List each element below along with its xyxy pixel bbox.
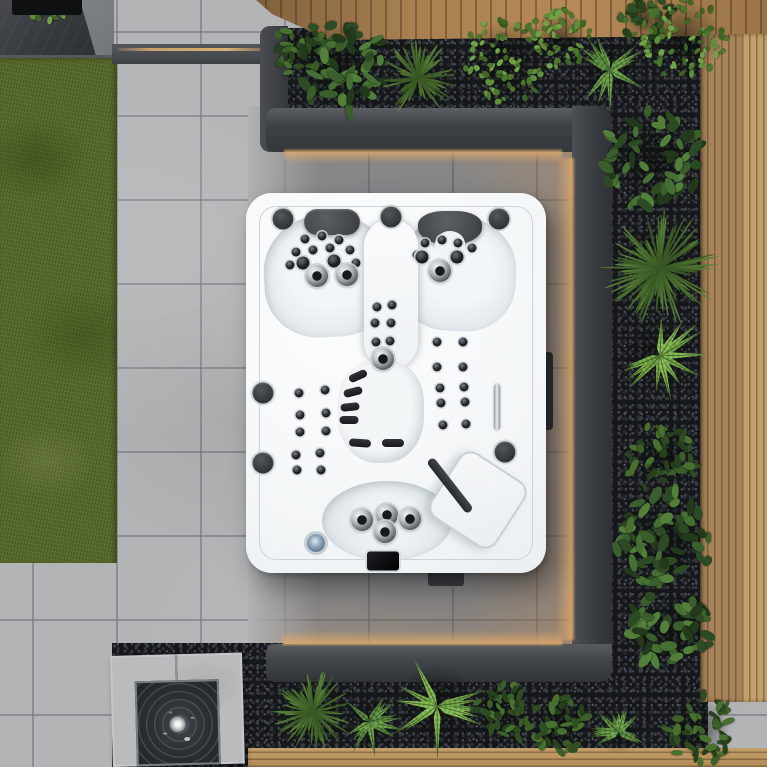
jet-pad	[340, 416, 359, 424]
jet-s	[322, 409, 331, 418]
jet-m	[328, 255, 341, 268]
jet-pad	[348, 368, 369, 383]
jet-s	[433, 363, 442, 372]
jet-spk	[489, 209, 510, 230]
jet-L	[306, 265, 328, 287]
jet-L	[429, 260, 451, 282]
jet-L	[399, 508, 421, 530]
jet-s	[461, 398, 470, 407]
jet-spk	[253, 383, 274, 404]
jet-s	[326, 244, 335, 253]
jet-spk	[381, 207, 402, 228]
jet-ctrl	[367, 552, 399, 571]
deck-border-bottom	[248, 748, 767, 767]
jet-s	[317, 466, 326, 475]
artificial-grass	[0, 57, 117, 563]
jet-L	[372, 348, 394, 370]
jet-s	[433, 338, 442, 347]
jet-s	[459, 338, 468, 347]
jet-s	[296, 411, 305, 420]
jet-s	[318, 232, 327, 241]
led-strip-top	[284, 150, 562, 163]
water-feature	[110, 653, 245, 767]
jet-s	[436, 384, 445, 393]
jet-s	[372, 338, 381, 347]
deck-right	[700, 34, 767, 702]
jet-s	[309, 246, 318, 255]
jet-s	[295, 389, 304, 398]
jet-pad	[382, 439, 404, 447]
jet-s	[438, 236, 447, 245]
jet-pad	[343, 386, 363, 398]
jet-L	[336, 264, 358, 286]
jet-spk	[273, 209, 294, 230]
jet-s	[296, 428, 305, 437]
jet-s	[388, 301, 397, 310]
jet-L	[351, 509, 373, 531]
jet-pad	[340, 402, 360, 412]
jet-handle	[494, 384, 500, 430]
jet-layout	[246, 193, 546, 573]
pebble-bed-bottom	[268, 676, 708, 752]
jet-s	[386, 337, 395, 346]
jet-s	[421, 239, 430, 248]
planter-wall-right	[572, 106, 612, 680]
water-feature-basin	[135, 679, 221, 766]
jet-s	[335, 236, 344, 245]
fountain-splash	[169, 716, 187, 732]
jet-m	[297, 257, 310, 270]
jet-L	[374, 521, 396, 543]
jet-s	[292, 451, 301, 460]
led-strip-right	[556, 158, 574, 640]
jet-s	[462, 420, 471, 429]
aerial-garden-photo	[0, 0, 767, 767]
jet-s	[346, 246, 355, 255]
jet-spk	[495, 442, 516, 463]
jet-s	[371, 319, 380, 328]
jet-m	[416, 251, 429, 264]
jet-s	[321, 386, 330, 395]
planter-wall-curb	[266, 644, 612, 682]
jet-s	[439, 421, 448, 430]
jet-pad	[349, 438, 372, 448]
jet-s	[437, 399, 446, 408]
jet-s	[460, 383, 469, 392]
jet-m	[451, 251, 464, 264]
jet-s	[293, 466, 302, 475]
jet-s	[459, 363, 468, 372]
planter-trough	[12, 0, 82, 15]
jet-s	[373, 303, 382, 312]
jet-s	[454, 239, 463, 248]
jet-led	[307, 534, 325, 552]
jet-s	[316, 449, 325, 458]
jet-s	[468, 244, 477, 253]
pebble-bed-right	[606, 96, 706, 704]
jet-s	[292, 248, 301, 257]
jet-s	[322, 427, 331, 436]
jet-spk	[253, 453, 274, 474]
led-strip-bottom	[282, 630, 562, 645]
hot-tub	[246, 193, 546, 573]
jet-s	[286, 261, 295, 270]
jet-s	[301, 235, 310, 244]
planter-wall-top	[266, 108, 612, 152]
jet-s	[387, 319, 396, 328]
